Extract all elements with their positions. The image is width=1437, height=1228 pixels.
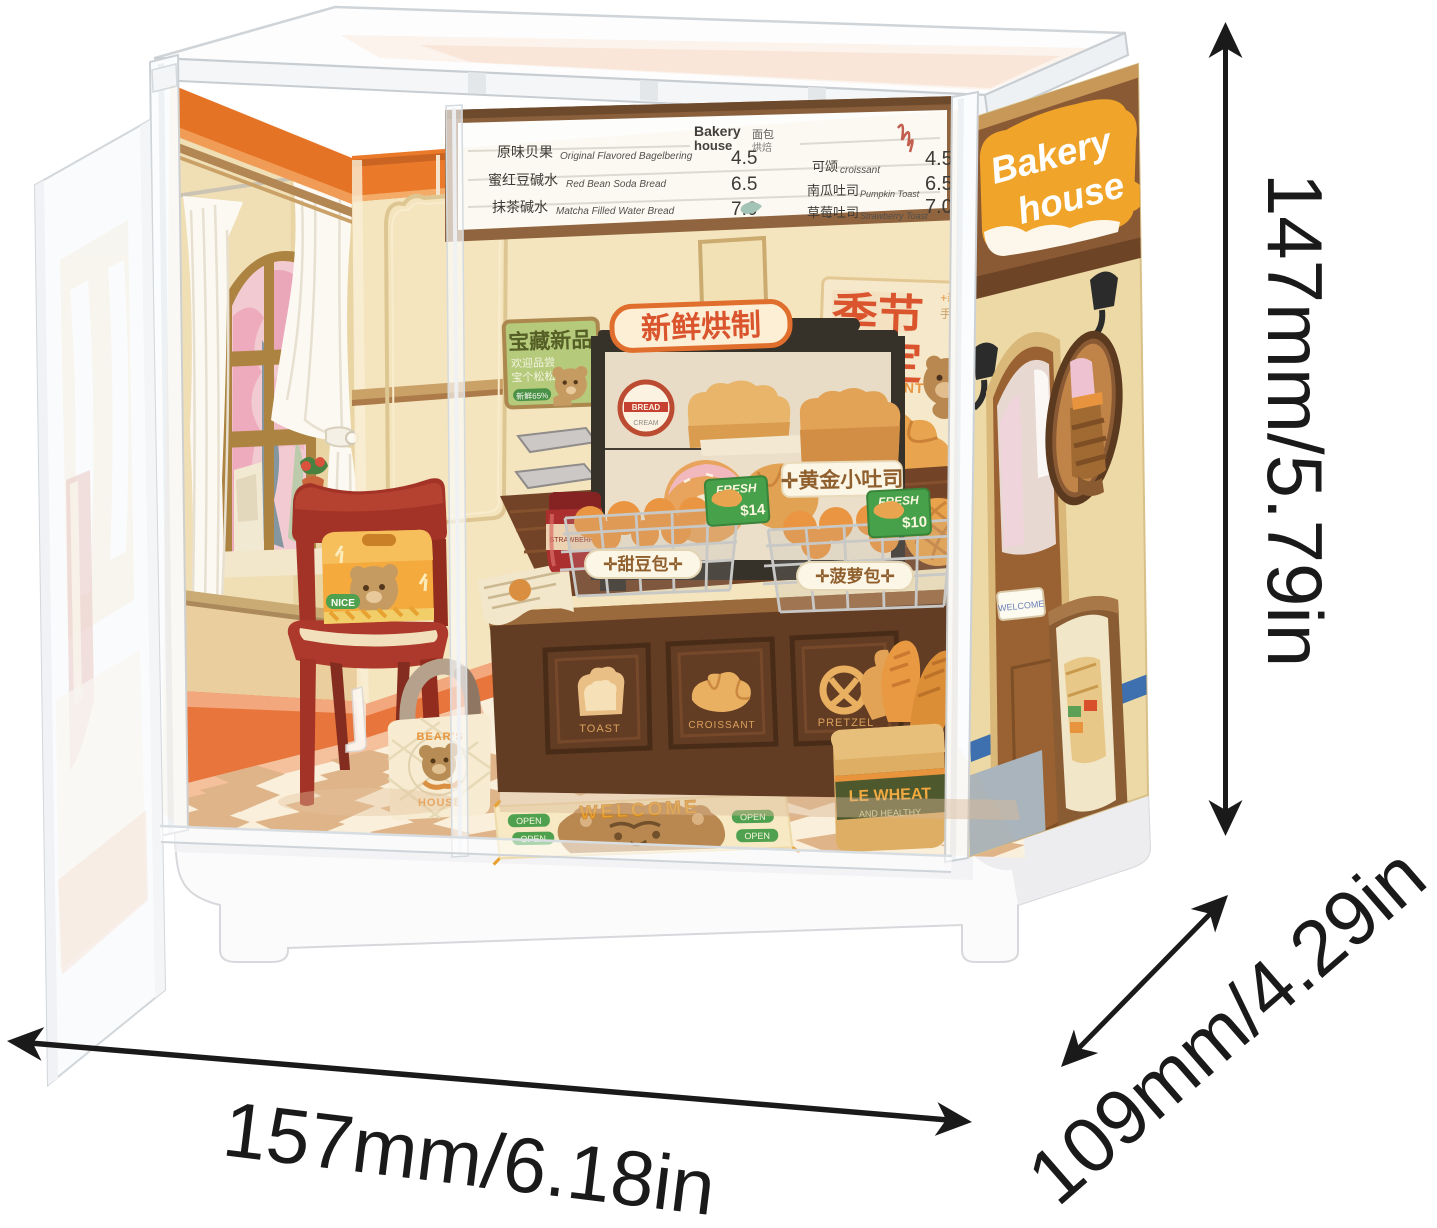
svg-text:147mm/5.79in: 147mm/5.79in [1251,173,1339,667]
